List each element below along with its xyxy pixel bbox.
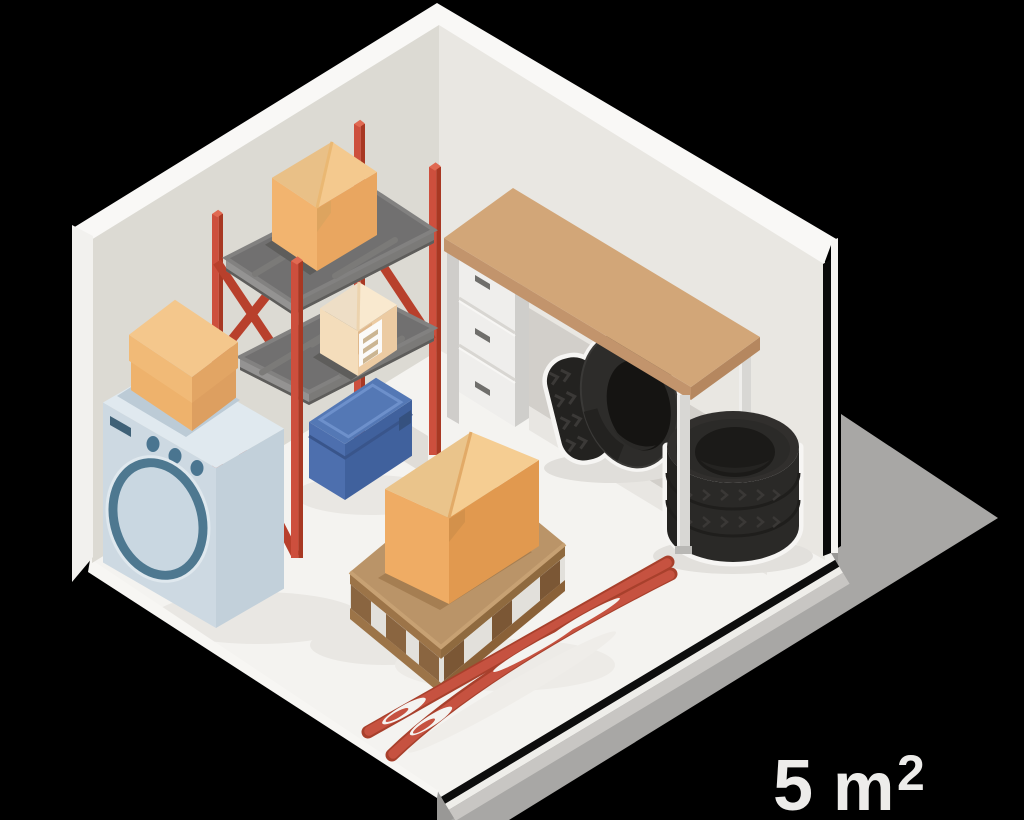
svg-text:m: m	[833, 748, 894, 820]
svg-text:5: 5	[773, 746, 813, 820]
svg-text:2: 2	[897, 745, 925, 801]
